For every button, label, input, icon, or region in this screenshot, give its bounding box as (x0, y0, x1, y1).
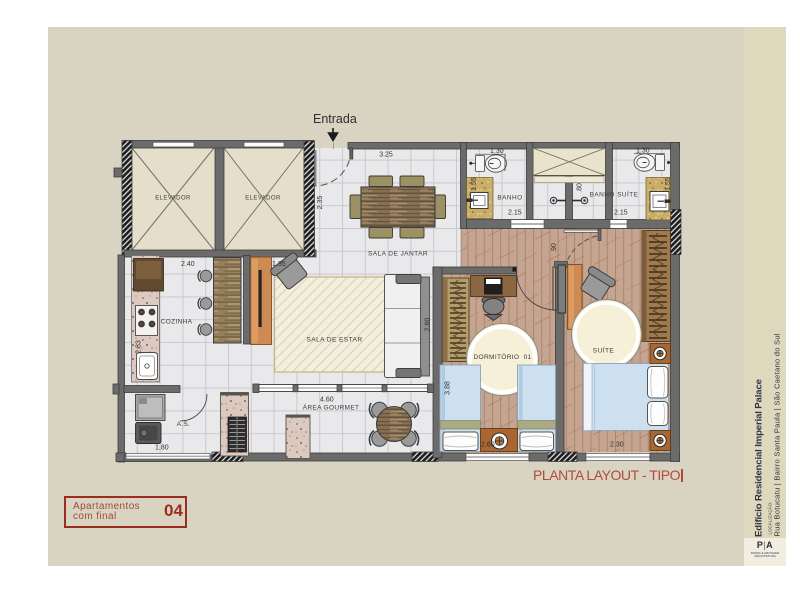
svg-text:2.30: 2.30 (610, 442, 624, 449)
svg-text:2.15: 2.15 (508, 210, 522, 217)
svg-text:1.80: 1.80 (155, 445, 169, 452)
svg-text:.90: .90 (551, 243, 558, 253)
svg-text:2.15: 2.15 (614, 210, 628, 217)
svg-text:SALA DE ESTAR: SALA DE ESTAR (306, 337, 362, 344)
svg-text:ÁREA GOURMET: ÁREA GOURMET (303, 403, 360, 412)
svg-text:BANHO SUÍTE: BANHO SUÍTE (590, 190, 639, 199)
svg-text:1.30: 1.30 (490, 148, 504, 155)
svg-text:2.60: 2.60 (425, 318, 432, 332)
svg-text:2.60: 2.60 (481, 442, 495, 449)
svg-text:DORMITÓRIO 01: DORMITÓRIO 01 (473, 352, 531, 361)
svg-text:4.60: 4.60 (320, 397, 334, 404)
svg-text:SUÍTE: SUÍTE (593, 346, 615, 355)
svg-text:A.S.: A.S. (177, 421, 191, 428)
svg-text:ELEVADOR: ELEVADOR (155, 196, 191, 202)
svg-text:1.35: 1.35 (272, 261, 286, 268)
svg-text:1.55: 1.55 (471, 177, 478, 191)
svg-text:3.25: 3.25 (379, 152, 393, 159)
svg-text:BANHO: BANHO (497, 195, 522, 202)
svg-text:3.88: 3.88 (445, 381, 452, 395)
svg-text:ELEVADOR: ELEVADOR (245, 196, 281, 202)
svg-text:.80: .80 (577, 183, 584, 193)
svg-text:2.35: 2.35 (317, 196, 324, 210)
svg-text:SALA DE JANTAR: SALA DE JANTAR (368, 251, 428, 258)
svg-text:2.83: 2.83 (136, 340, 143, 354)
svg-text:1.30: 1.30 (636, 148, 650, 155)
svg-text:COZINHA: COZINHA (161, 319, 193, 326)
svg-text:1.55: 1.55 (665, 177, 672, 191)
svg-text:2.40: 2.40 (181, 261, 195, 268)
